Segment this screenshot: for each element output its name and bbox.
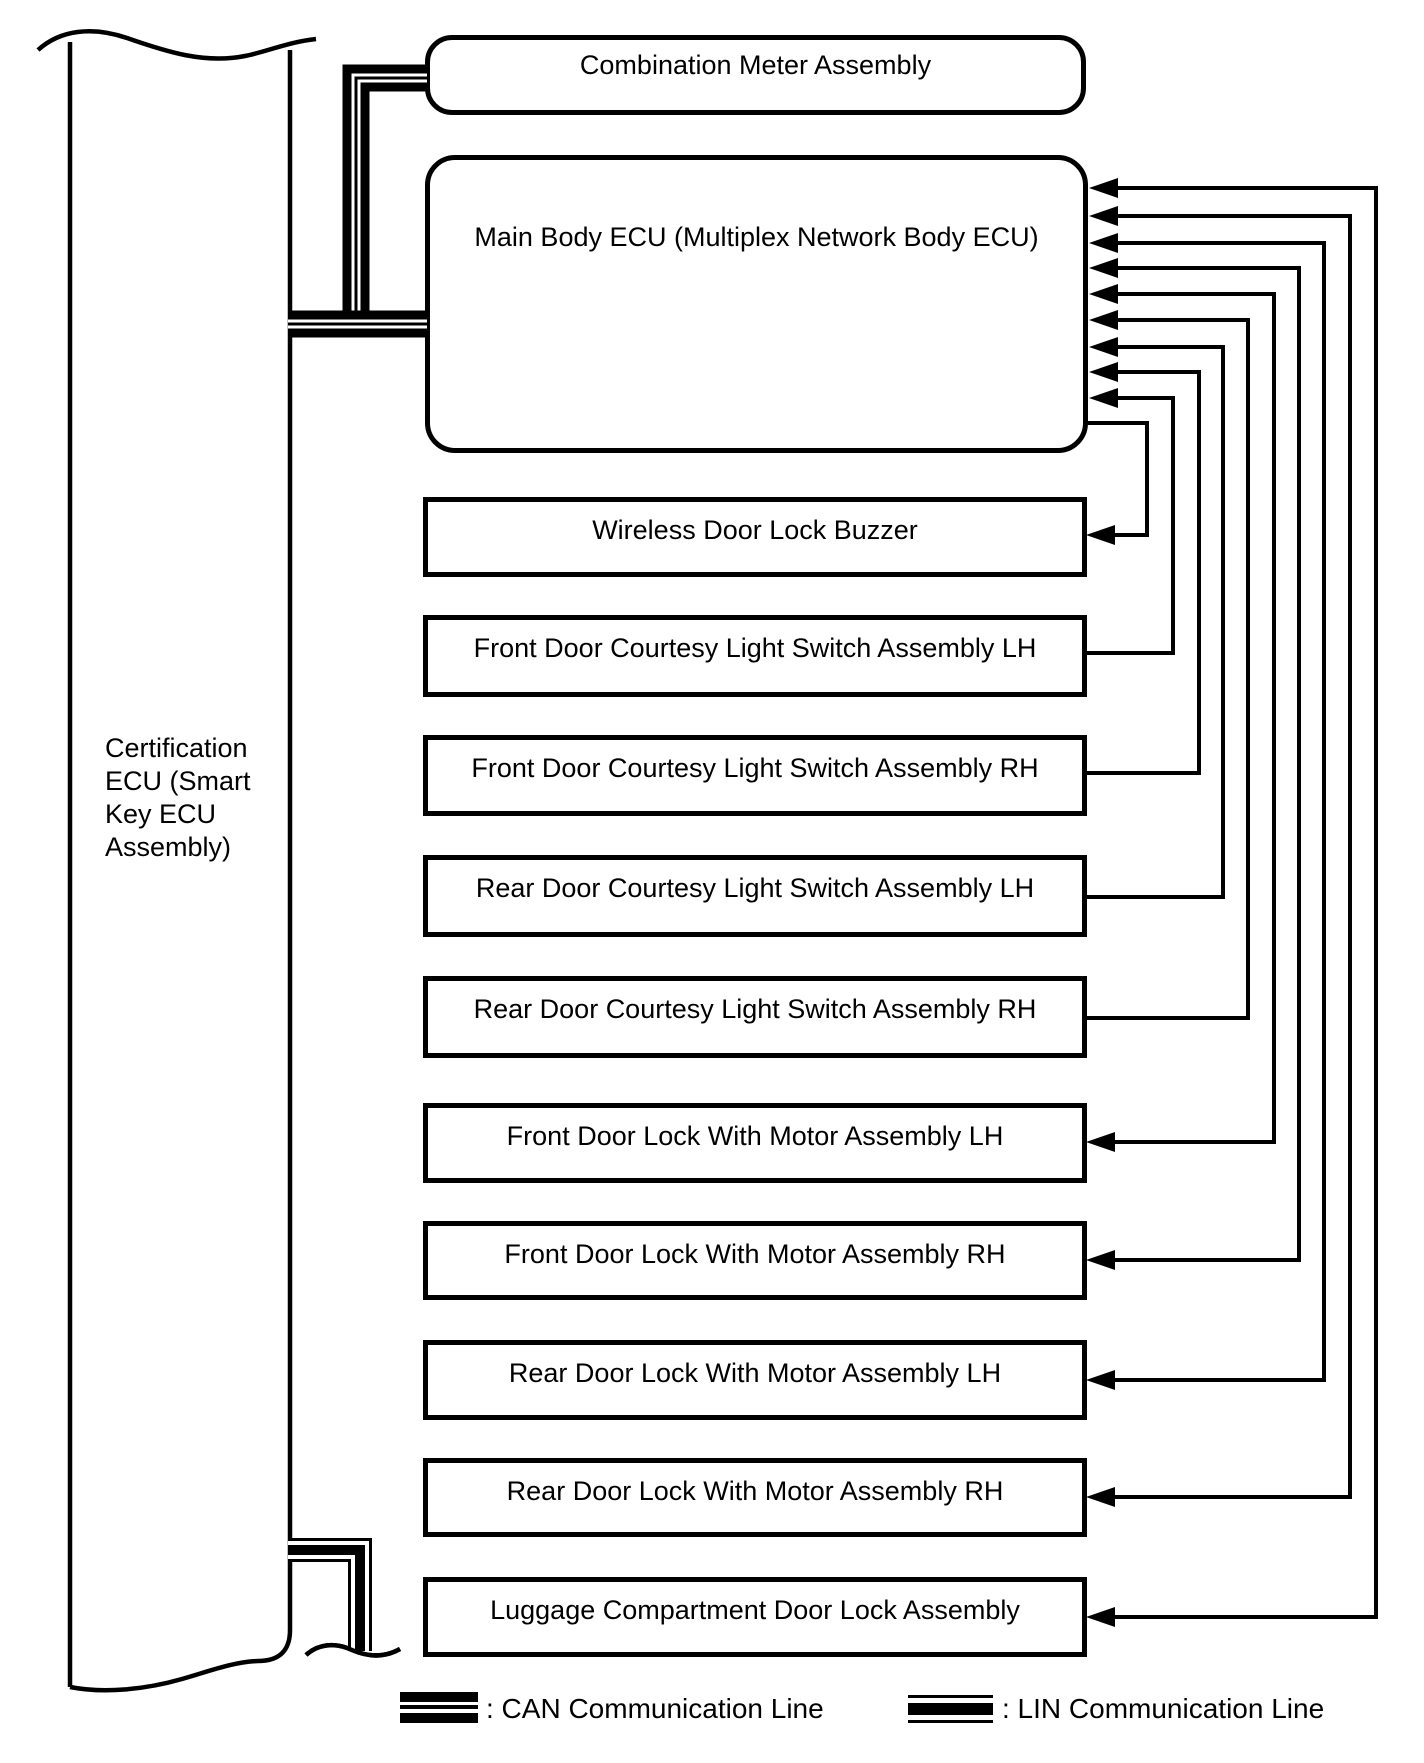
signal-connectors (1087, 188, 1376, 1617)
front-door-courtesy-rh-label: Front Door Courtesy Light Switch Assembl… (471, 753, 1038, 783)
conn-front-lock-rh (1096, 268, 1299, 1260)
conn-rear-lock-lh (1096, 243, 1324, 1380)
lin-line (288, 1550, 400, 1656)
front-door-courtesy-lh-box: Front Door Courtesy Light Switch Assembl… (423, 615, 1087, 697)
conn-buzzer (1088, 423, 1147, 535)
rear-door-courtesy-rh-label: Rear Door Courtesy Light Switch Assembly… (474, 994, 1037, 1024)
conn-rear-courtesy-rh (1087, 320, 1248, 1018)
front-door-courtesy-lh-label: Front Door Courtesy Light Switch Assembl… (474, 633, 1037, 663)
cert-right-edge (258, 50, 290, 1661)
lin-legend-label: : LIN Communication Line (1002, 1693, 1324, 1725)
cert-bottom-wavy-edge (70, 1661, 258, 1690)
can-legend-label: : CAN Communication Line (486, 1693, 824, 1725)
rear-door-courtesy-rh-box: Rear Door Courtesy Light Switch Assembly… (423, 976, 1087, 1058)
rear-door-lock-lh-box: Rear Door Lock With Motor Assembly LH (423, 1340, 1087, 1420)
rear-door-lock-rh-box: Rear Door Lock With Motor Assembly RH (423, 1458, 1087, 1537)
front-door-lock-rh-label: Front Door Lock With Motor Assembly RH (504, 1239, 1005, 1269)
wiring-diagram: Certification ECU (Smart Key ECU Assembl… (0, 0, 1424, 1763)
arrowheads-into-ecu (1089, 178, 1118, 408)
certification-ecu-label: Certification ECU (Smart Key ECU Assembl… (105, 732, 251, 864)
combination-meter-box: Combination Meter Assembly (425, 35, 1086, 115)
luggage-door-lock-box: Luggage Compartment Door Lock Assembly (423, 1577, 1087, 1657)
conn-front-courtesy-lh (1087, 398, 1173, 653)
front-door-lock-rh-box: Front Door Lock With Motor Assembly RH (423, 1221, 1087, 1300)
wireless-door-lock-buzzer-box: Wireless Door Lock Buzzer (423, 497, 1087, 577)
wireless-door-lock-buzzer-label: Wireless Door Lock Buzzer (592, 515, 918, 545)
rear-door-courtesy-lh-box: Rear Door Courtesy Light Switch Assembly… (423, 855, 1087, 937)
can-legend-swatch (400, 1692, 478, 1723)
cert-top-wavy-edge (38, 31, 316, 58)
conn-front-courtesy-rh (1087, 372, 1199, 773)
front-door-lock-lh-box: Front Door Lock With Motor Assembly LH (423, 1103, 1087, 1183)
main-body-ecu-box: Main Body ECU (Multiplex Network Body EC… (425, 155, 1088, 453)
lin-break-wavy-mark (306, 1645, 400, 1655)
conn-luggage-lock (1096, 188, 1376, 1617)
front-door-courtesy-rh-box: Front Door Courtesy Light Switch Assembl… (423, 735, 1087, 816)
conn-front-lock-lh (1096, 294, 1274, 1142)
rear-door-lock-lh-label: Rear Door Lock With Motor Assembly LH (509, 1358, 1001, 1388)
main-body-ecu-label: Main Body ECU (Multiplex Network Body EC… (474, 222, 1038, 252)
conn-rear-lock-rh (1096, 216, 1350, 1497)
rear-door-lock-rh-label: Rear Door Lock With Motor Assembly RH (507, 1476, 1004, 1506)
front-door-lock-lh-label: Front Door Lock With Motor Assembly LH (507, 1121, 1004, 1151)
rear-door-courtesy-lh-label: Rear Door Courtesy Light Switch Assembly… (476, 873, 1034, 903)
combination-meter-label: Combination Meter Assembly (580, 50, 931, 80)
luggage-door-lock-label: Luggage Compartment Door Lock Assembly (490, 1595, 1020, 1625)
conn-rear-courtesy-lh (1087, 347, 1223, 897)
can-line (288, 78, 427, 324)
lin-break-wavy-mark-top (306, 1645, 400, 1655)
arrowheads-into-components (1086, 525, 1115, 1627)
lin-legend-swatch (908, 1695, 993, 1723)
